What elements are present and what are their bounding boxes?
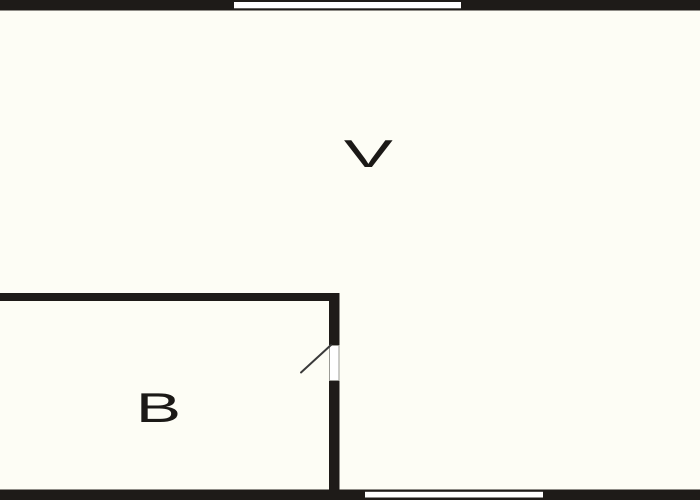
svg-text:V: V <box>344 133 393 176</box>
svg-text:B: B <box>136 384 181 430</box>
